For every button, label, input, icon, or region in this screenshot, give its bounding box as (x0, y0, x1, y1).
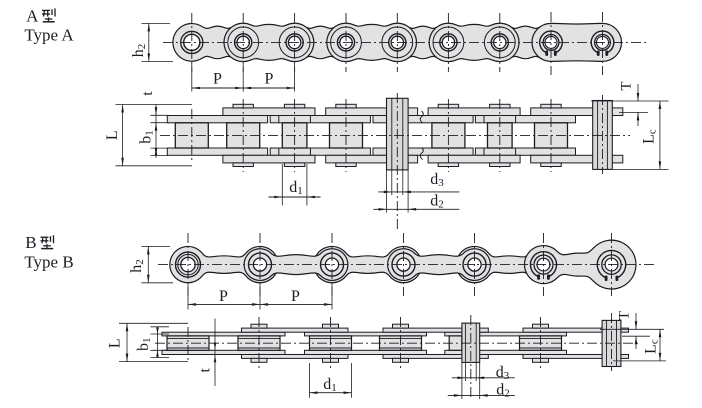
svg-text:T: T (619, 81, 635, 90)
svg-text:Type B: Type B (24, 252, 73, 271)
svg-text:T: T (617, 311, 633, 320)
svg-text:Type A: Type A (24, 26, 74, 45)
svg-text:P: P (265, 70, 274, 87)
svg-text:A: A (26, 6, 39, 25)
svg-text:B: B (25, 233, 36, 252)
svg-text:P: P (213, 70, 222, 87)
svg-text:P: P (291, 288, 300, 305)
svg-text:P: P (219, 288, 228, 305)
svg-text:L: L (107, 338, 124, 348)
svg-text:L: L (104, 130, 121, 140)
